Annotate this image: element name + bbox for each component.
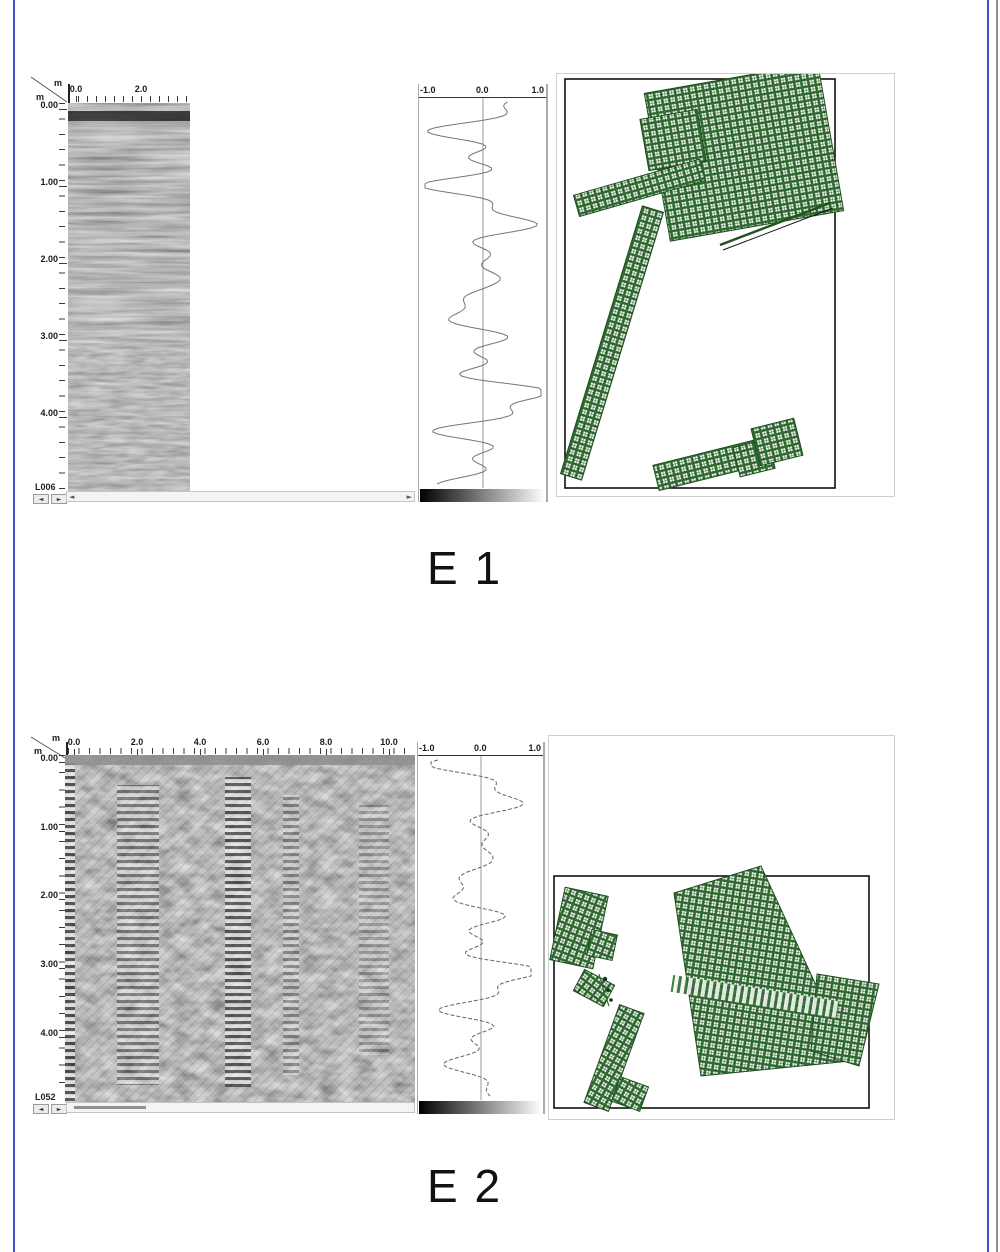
survey-map	[557, 74, 894, 496]
amplitude-axis: -1.0 0.0 1.0	[419, 84, 546, 98]
horizontal-scrollbar[interactable]: ◄ ►	[66, 491, 415, 502]
depth-tick-label: 2.00	[28, 890, 58, 900]
amplitude-min-label-2: -1.0	[419, 743, 435, 753]
amplitude-max-label: 1.0	[531, 85, 544, 95]
depth-tick-label: 3.00	[28, 331, 58, 341]
depth-tick-label: 3.00	[28, 959, 58, 969]
figure-caption-e2: E 2	[427, 1159, 502, 1213]
distance-tick-label: 2.0	[126, 84, 156, 94]
wiggle-trace-2	[418, 756, 543, 1100]
next-line-button-2[interactable]: ►	[51, 1104, 67, 1114]
depth-tick-label: 0.00	[28, 100, 58, 110]
radargram-image	[68, 103, 190, 492]
distance-tick-label: 0.0	[61, 84, 91, 94]
depth-tick-label: 2.00	[28, 254, 58, 264]
amplitude-zero-label: 0.0	[476, 85, 489, 95]
distance-tick-label: 0.0	[59, 737, 89, 747]
depth-tick-label: 1.00	[28, 177, 58, 187]
depth-tick-label: 4.00	[28, 1028, 58, 1038]
survey-block-2	[751, 418, 803, 466]
scroll-right-icon[interactable]: ►	[407, 492, 412, 502]
horizontal-scrollbar-2[interactable]	[66, 1102, 415, 1113]
page-edge-line	[996, 0, 998, 1252]
distance-tick-label: 8.0	[311, 737, 341, 747]
prev-line-button[interactable]: ◄	[33, 494, 49, 504]
depth-axis-ticks	[59, 103, 65, 491]
line-label-2: L052	[35, 1092, 56, 1102]
prev-line-button-2[interactable]: ◄	[33, 1104, 49, 1114]
distance-axis-ticks	[69, 96, 187, 102]
next-line-button[interactable]: ►	[51, 494, 67, 504]
left-rule-line	[13, 0, 15, 1252]
survey-dot	[603, 977, 607, 981]
trace-panel-2: -1.0 0.0 1.0	[417, 742, 545, 1114]
amplitude-min-label: -1.0	[420, 85, 436, 95]
survey-fragment-b	[573, 969, 614, 1006]
figure-page: m m 0.02.0 0.001.002.003.004.00	[0, 0, 1000, 1252]
survey-dot	[609, 998, 613, 1002]
amplitude-axis-2: -1.0 0.0 1.0	[418, 742, 543, 756]
distance-tick-label: 2.0	[122, 737, 152, 747]
wiggle-trace	[419, 98, 546, 488]
colorbar-gradient-2	[419, 1101, 542, 1114]
depth-tick-label: 1.00	[28, 822, 58, 832]
survey-dot	[606, 988, 610, 992]
survey-strip-vertical	[561, 206, 664, 480]
survey-map-2	[549, 736, 894, 1119]
survey-map-panel	[556, 73, 895, 497]
survey-fragment-a2	[587, 930, 618, 961]
distance-tick-label: 6.0	[248, 737, 278, 747]
figure-caption-e1: E 1	[427, 541, 502, 595]
distance-axis-ticks-2	[68, 748, 414, 754]
scrollbar-thumb[interactable]	[74, 1106, 146, 1109]
depth-tick-label: 0.00	[28, 753, 58, 763]
radargram-image-2	[65, 755, 415, 1102]
depth-tick-label: 4.00	[28, 408, 58, 418]
line-label: L006	[35, 482, 56, 492]
amplitude-max-label-2: 1.0	[528, 743, 541, 753]
survey-map-panel-2	[548, 735, 895, 1120]
right-rule-line	[987, 0, 989, 1252]
axis-zero-mark	[68, 84, 70, 103]
axis-zero-mark-2	[66, 742, 68, 755]
scroll-left-icon[interactable]: ◄	[69, 492, 74, 502]
colorbar-gradient	[420, 489, 545, 502]
amplitude-zero-label-2: 0.0	[474, 743, 487, 753]
trace-panel: -1.0 0.0 1.0	[418, 84, 548, 502]
distance-tick-label: 10.0	[374, 737, 404, 747]
distance-tick-label: 4.0	[185, 737, 215, 747]
